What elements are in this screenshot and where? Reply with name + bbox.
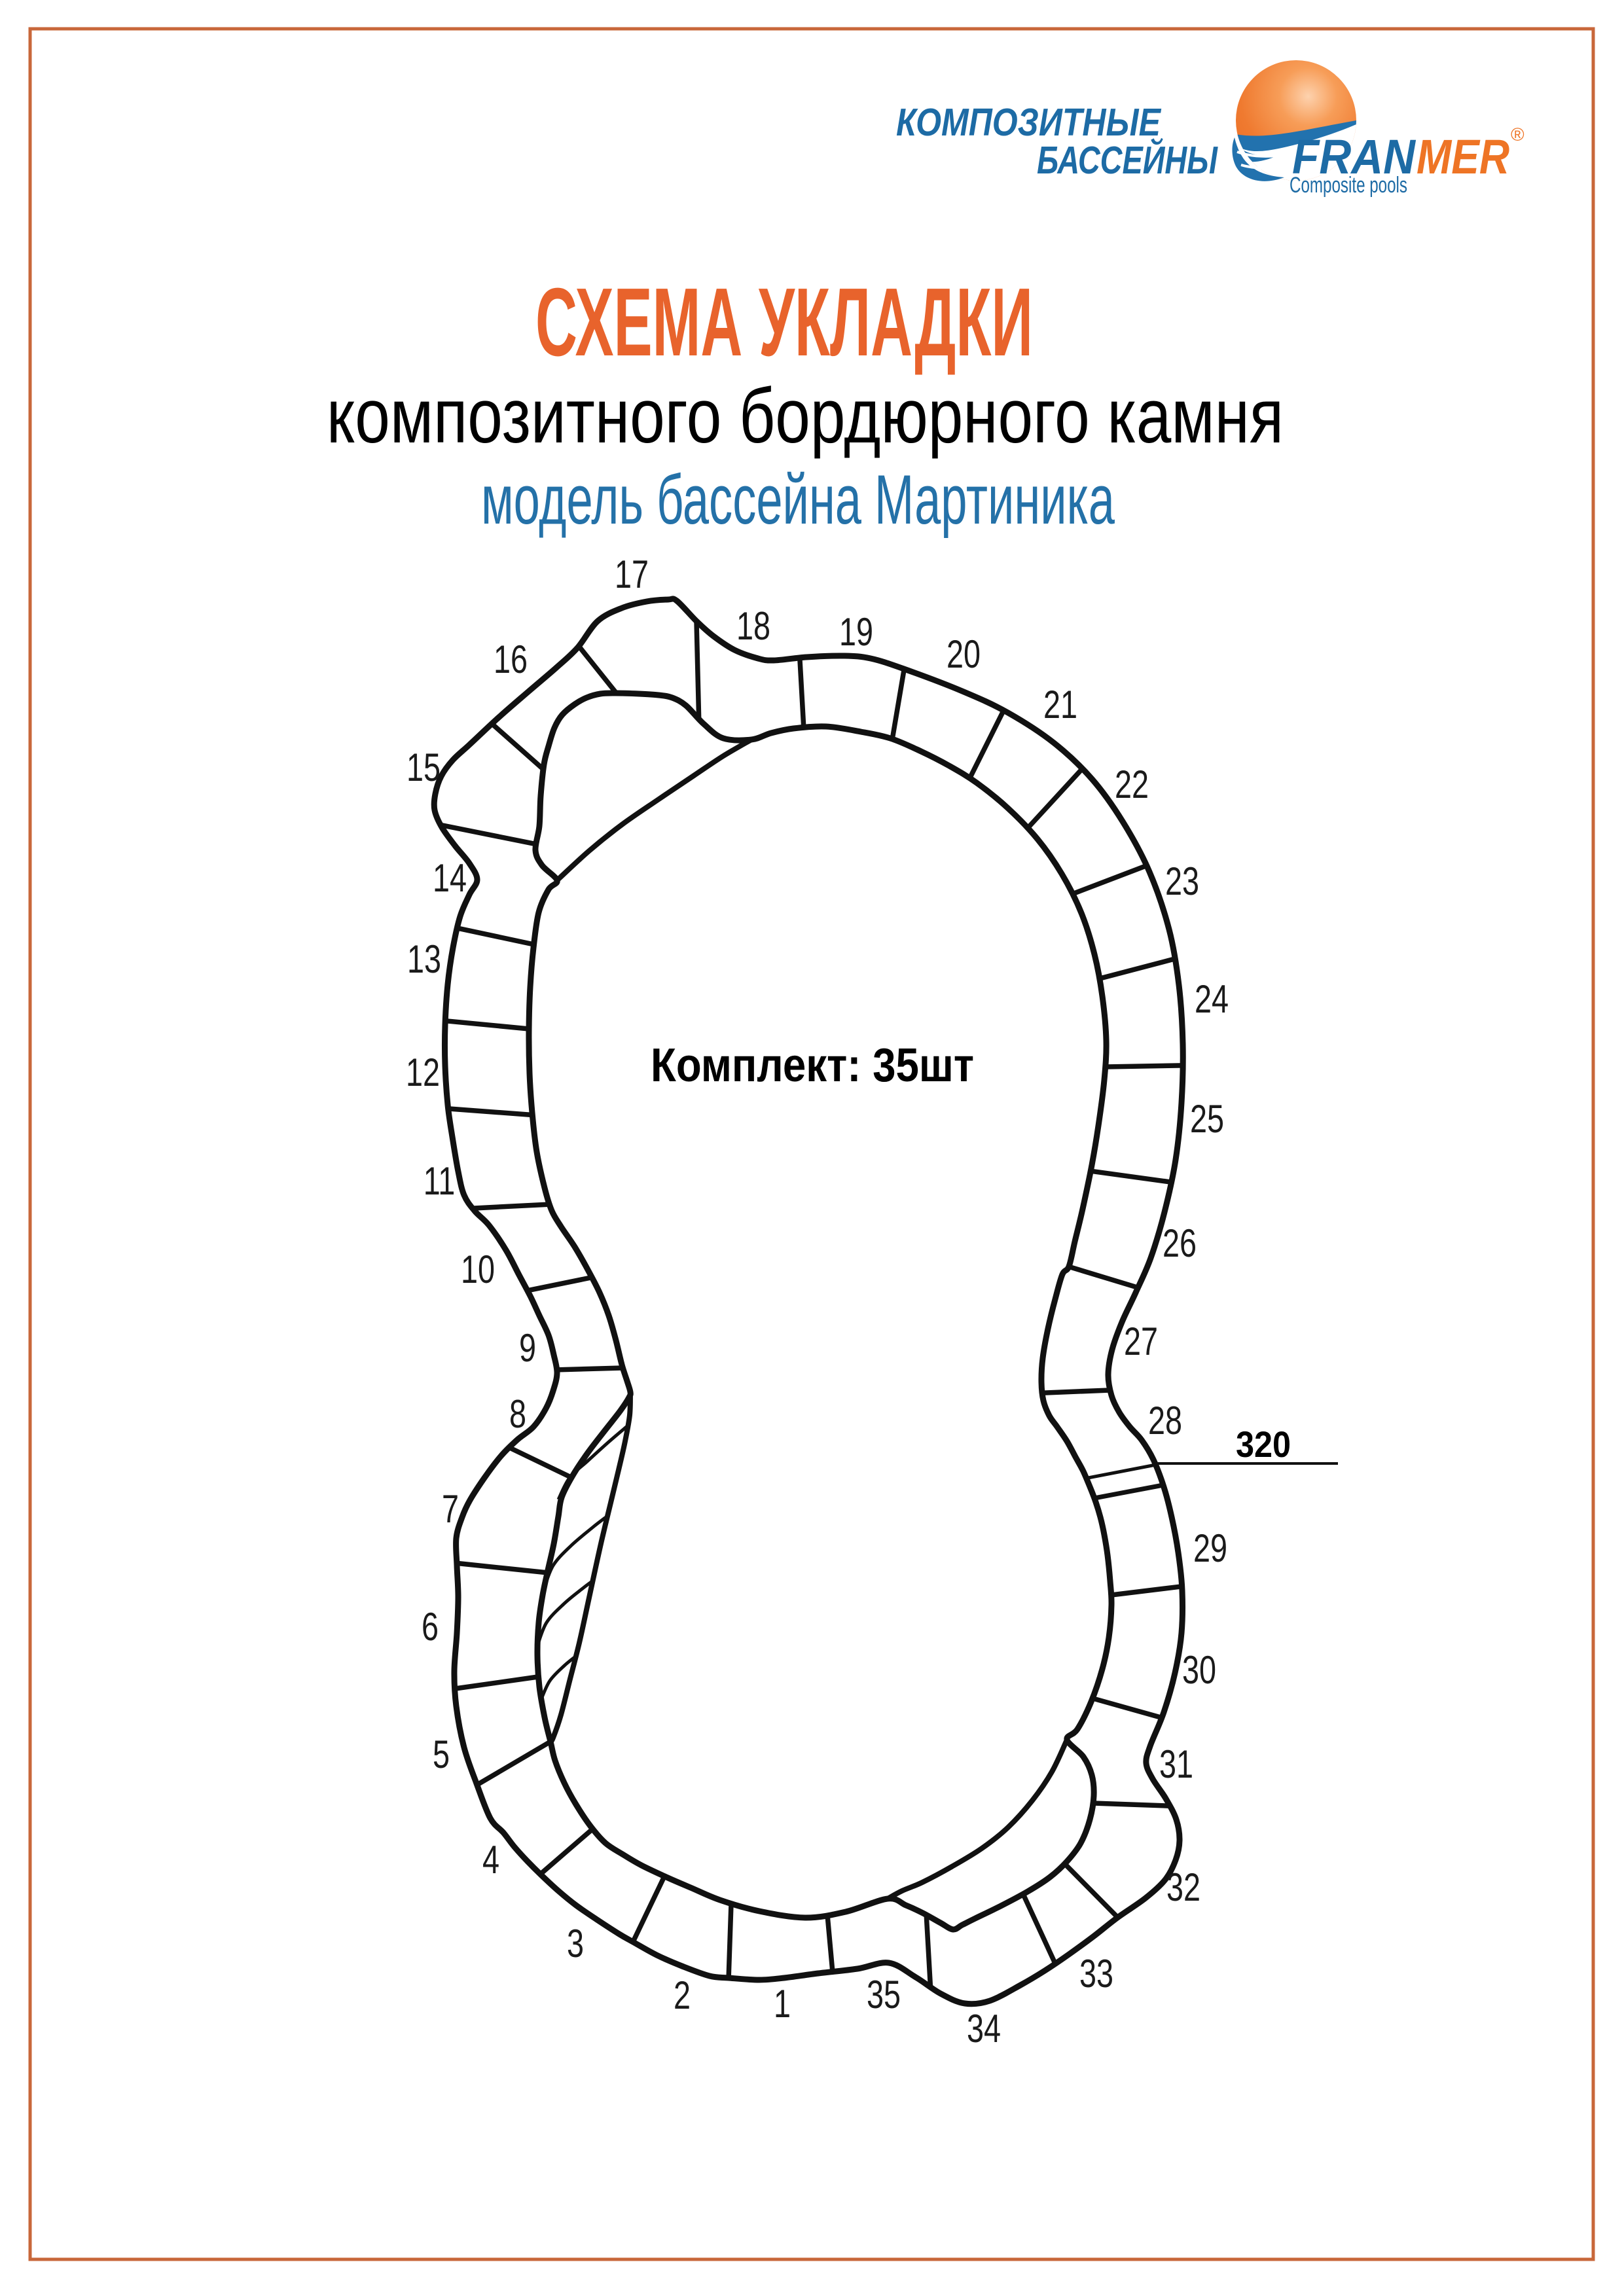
- svg-text:9: 9: [519, 1327, 536, 1371]
- svg-text:2: 2: [674, 1974, 691, 2018]
- svg-text:1: 1: [774, 1982, 791, 2026]
- svg-text:17: 17: [615, 553, 649, 597]
- svg-text:21: 21: [1043, 683, 1077, 727]
- svg-text:6: 6: [422, 1605, 439, 1649]
- svg-text:БАССЕЙНЫ: БАССЕЙНЫ: [1037, 137, 1219, 182]
- svg-text:24: 24: [1195, 978, 1229, 1022]
- svg-text:5: 5: [433, 1733, 450, 1777]
- svg-text:16: 16: [494, 638, 528, 682]
- svg-text:31: 31: [1159, 1743, 1193, 1787]
- svg-text:23: 23: [1165, 860, 1199, 904]
- svg-text:12: 12: [406, 1051, 440, 1095]
- svg-text:33: 33: [1079, 1952, 1113, 1996]
- svg-text:28: 28: [1148, 1399, 1182, 1443]
- svg-text:30: 30: [1182, 1649, 1216, 1693]
- svg-text:34: 34: [967, 2007, 1001, 2051]
- svg-text:25: 25: [1190, 1098, 1224, 1141]
- svg-text:26: 26: [1163, 1222, 1197, 1266]
- svg-text:®: ®: [1511, 124, 1525, 145]
- svg-text:18: 18: [736, 605, 770, 649]
- svg-text:Composite pools: Composite pools: [1290, 173, 1407, 198]
- svg-text:29: 29: [1193, 1527, 1227, 1571]
- svg-text:7: 7: [442, 1488, 459, 1532]
- svg-text:32: 32: [1166, 1866, 1200, 1910]
- svg-text:СХЕМА УКЛАДКИ: СХЕМА УКЛАДКИ: [535, 268, 1033, 376]
- svg-text:27: 27: [1124, 1320, 1158, 1364]
- svg-text:4: 4: [482, 1839, 499, 1882]
- svg-text:11: 11: [424, 1160, 456, 1204]
- svg-text:Комплект: 35шт: Комплект: 35шт: [651, 1039, 974, 1092]
- svg-text:КОМПОЗИТНЫЕ: КОМПОЗИТНЫЕ: [896, 101, 1161, 144]
- svg-text:320: 320: [1236, 1425, 1291, 1465]
- svg-text:композитного бордюрного камня: композитного бордюрного камня: [327, 373, 1284, 459]
- svg-text:13: 13: [407, 938, 441, 982]
- svg-text:3: 3: [567, 1922, 584, 1966]
- svg-text:35: 35: [867, 1973, 901, 2017]
- svg-text:8: 8: [509, 1393, 526, 1437]
- svg-text:14: 14: [433, 857, 467, 901]
- svg-text:10: 10: [461, 1248, 495, 1292]
- svg-text:19: 19: [839, 611, 873, 655]
- svg-text:MER: MER: [1416, 130, 1509, 184]
- svg-text:22: 22: [1115, 763, 1149, 807]
- svg-text:15: 15: [406, 746, 441, 790]
- svg-text:20: 20: [947, 633, 981, 677]
- svg-text:модель бассейна Мартиника: модель бассейна Мартиника: [481, 460, 1115, 539]
